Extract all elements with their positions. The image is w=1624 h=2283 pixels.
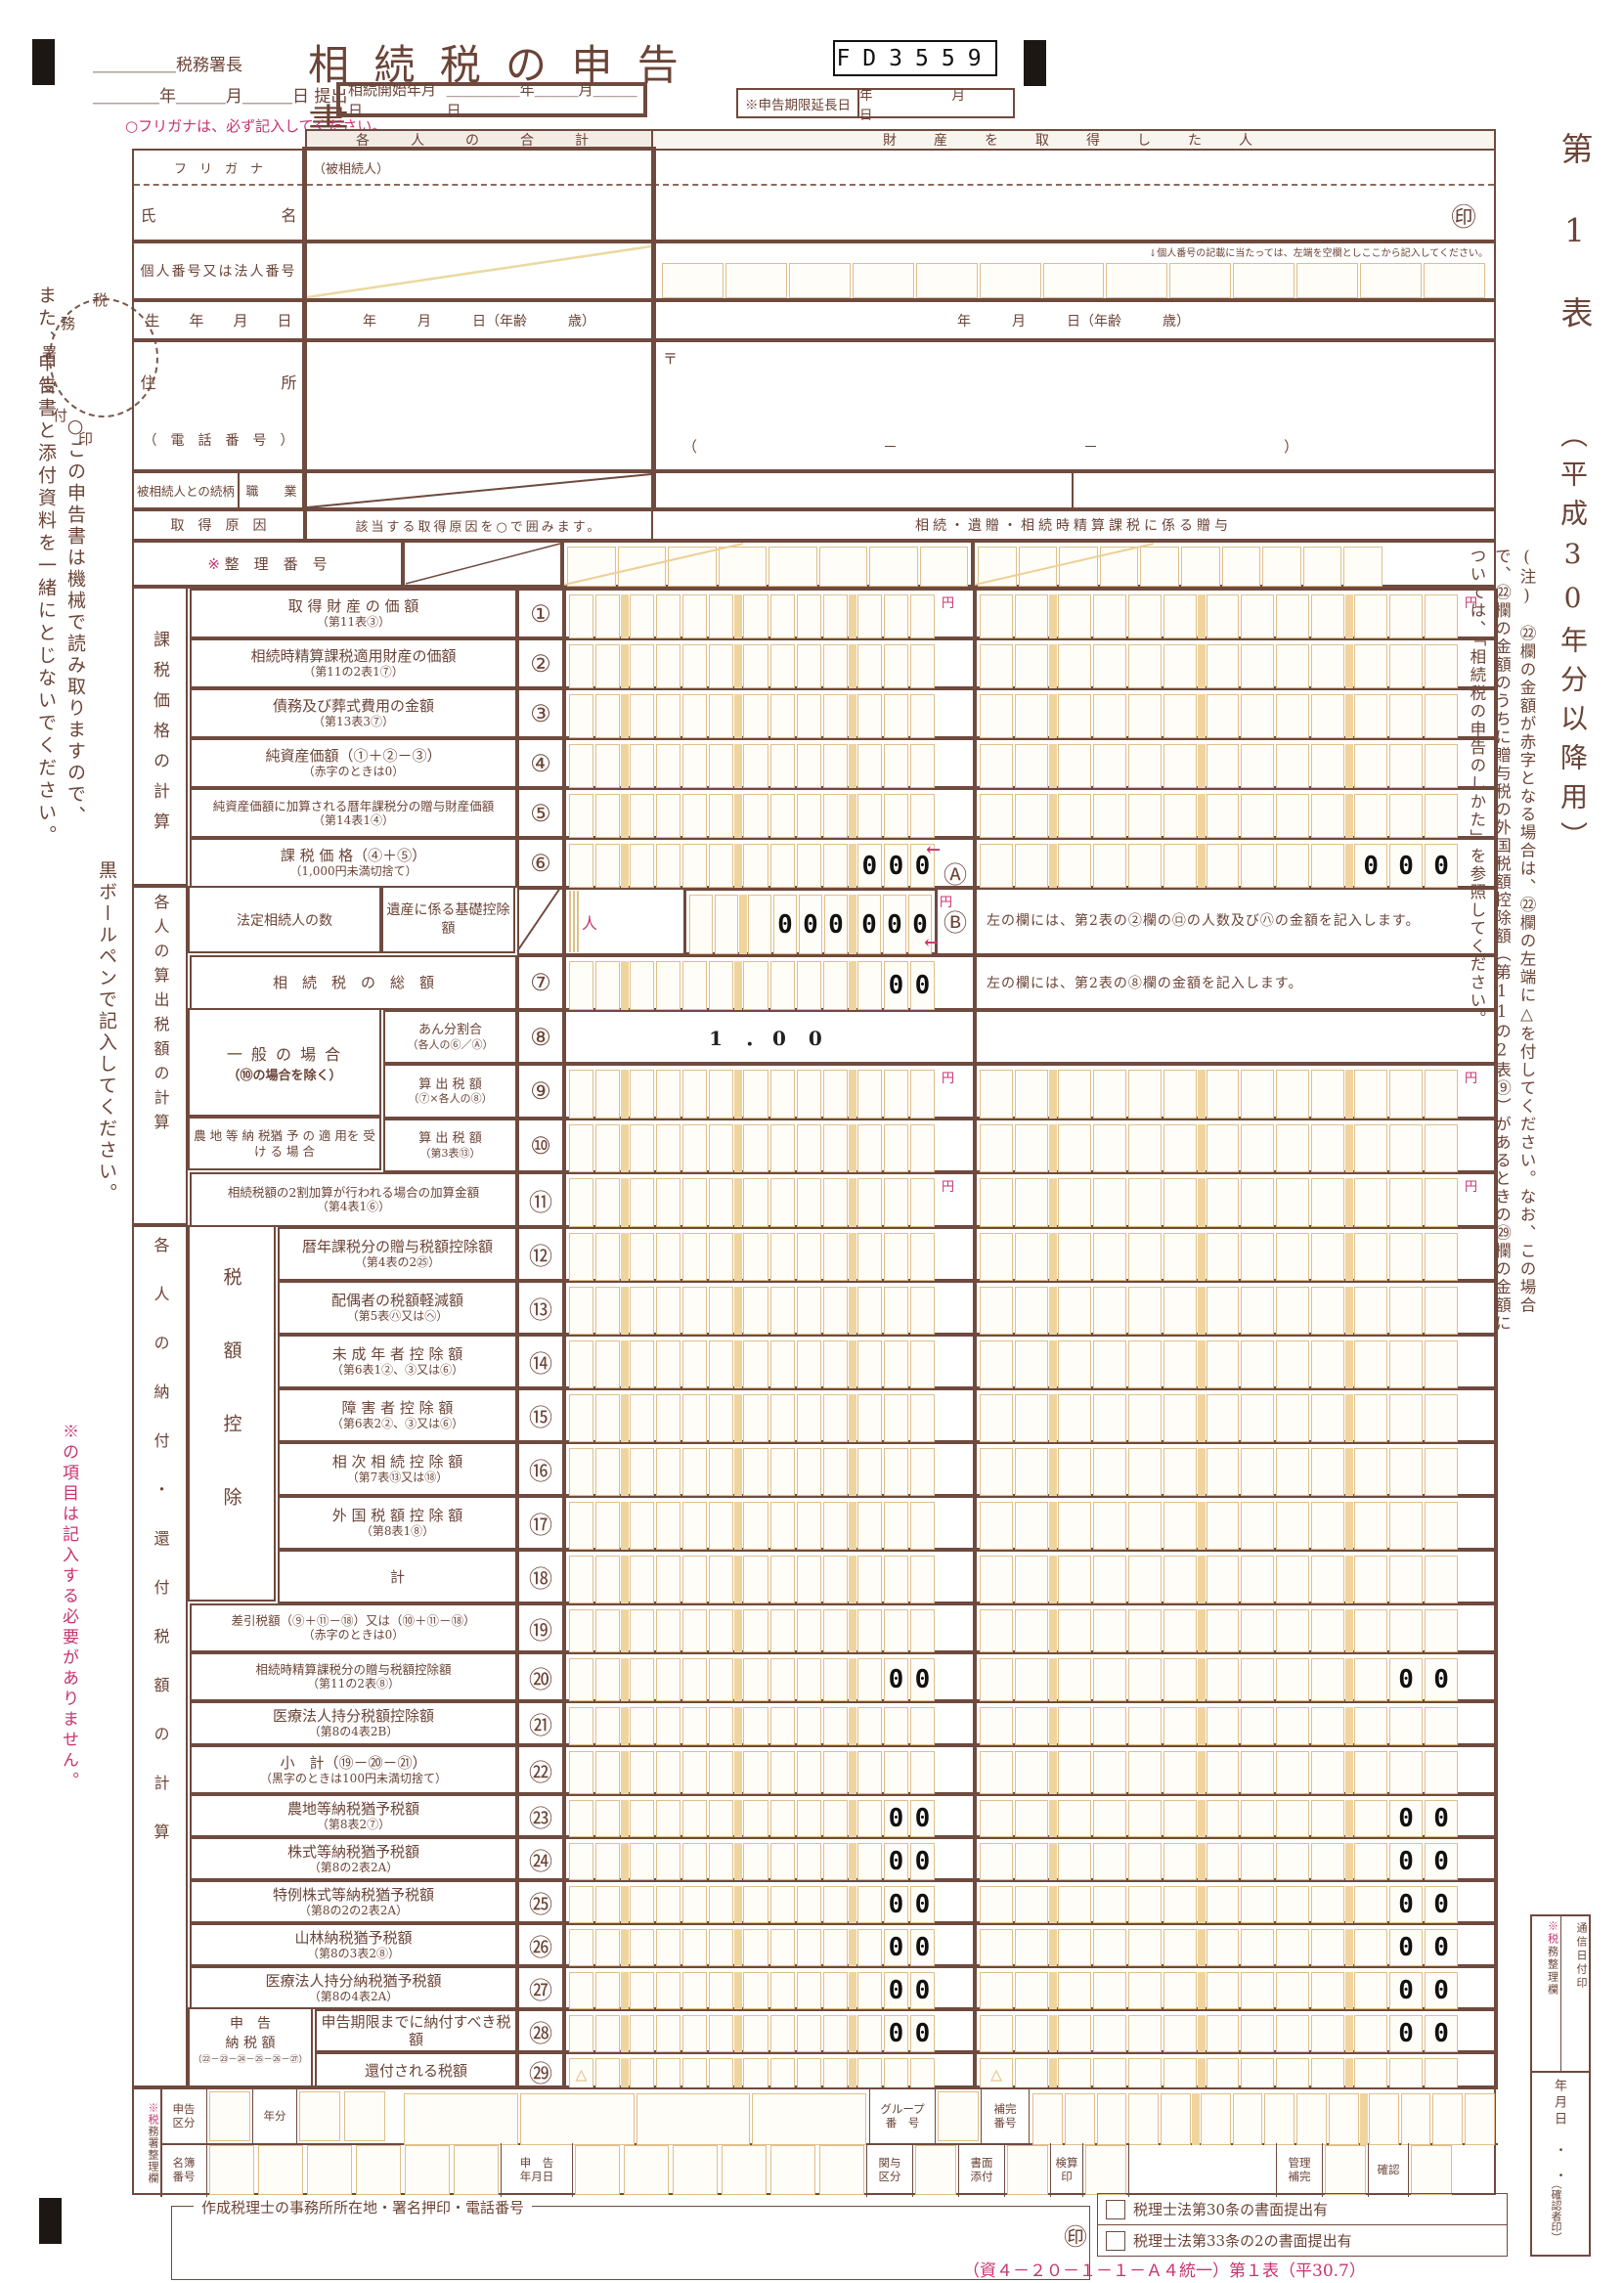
money-cell[interactable] — [1389, 1124, 1423, 1172]
money-cell[interactable] — [1389, 1707, 1423, 1745]
money-cell[interactable] — [743, 744, 768, 788]
money-cell[interactable] — [1128, 844, 1162, 888]
money-cell[interactable] — [857, 1609, 882, 1652]
money-cell[interactable] — [1311, 644, 1344, 688]
person-occupation-cell[interactable] — [1072, 471, 1496, 509]
money-cell[interactable] — [1207, 1502, 1240, 1550]
money-cell[interactable] — [1207, 744, 1240, 788]
money-cell[interactable] — [857, 1233, 882, 1281]
admin-box[interactable] — [405, 2145, 450, 2195]
money-cell[interactable] — [682, 1502, 707, 1550]
money-cell[interactable] — [1163, 1178, 1197, 1227]
money-cell[interactable] — [770, 1972, 795, 2009]
money-cell[interactable] — [569, 844, 593, 888]
money-cell[interactable] — [1389, 1751, 1423, 1794]
admin-box[interactable] — [673, 2145, 718, 2195]
money-cell[interactable] — [1425, 1124, 1458, 1172]
money-cell[interactable] — [1241, 1886, 1274, 1923]
money-cell[interactable] — [1276, 1800, 1309, 1837]
money-cell[interactable] — [1276, 1124, 1309, 1172]
sum-cells-9[interactable] — [566, 1066, 938, 1117]
money-cell[interactable] — [1354, 594, 1387, 638]
money-cell[interactable] — [1128, 1843, 1162, 1880]
money-cell[interactable]: 0 — [910, 1843, 935, 1880]
money-cell[interactable] — [910, 594, 935, 638]
money-cell[interactable] — [1058, 1448, 1091, 1496]
person-cells-4[interactable] — [977, 740, 1461, 786]
money-cell[interactable] — [1059, 547, 1098, 587]
money-cell[interactable] — [709, 1340, 733, 1388]
money-cell[interactable] — [569, 1340, 593, 1388]
money-cell[interactable] — [797, 1178, 821, 1227]
money-cell[interactable] — [630, 1070, 654, 1119]
person-address-cell[interactable]: 〒 （ － － ） — [651, 340, 1496, 471]
money-cell[interactable] — [1354, 1340, 1387, 1388]
money-cell[interactable] — [823, 694, 848, 738]
money-cell[interactable] — [980, 744, 1013, 788]
money-cell[interactable] — [709, 1394, 733, 1442]
money-cell[interactable] — [910, 644, 935, 688]
money-cell[interactable] — [656, 1658, 680, 1701]
money-cell[interactable] — [884, 1502, 908, 1550]
money-cell[interactable]: 0 — [1354, 844, 1387, 888]
money-cell[interactable] — [1058, 1394, 1091, 1442]
money-cell[interactable] — [1241, 594, 1274, 638]
sum-amount-27[interactable]: 00 — [564, 1966, 975, 2009]
money-cell[interactable] — [569, 1070, 593, 1119]
money-cell[interactable] — [743, 1233, 768, 1281]
money-cell[interactable] — [884, 744, 908, 788]
money-cell[interactable] — [630, 2058, 654, 2089]
money-cell[interactable] — [823, 1929, 848, 1966]
money-cell[interactable] — [857, 794, 882, 838]
money-cell[interactable] — [884, 2058, 908, 2089]
person-amount-heirs[interactable]: 左の欄には、第2表の②欄の㋺の人数及び㋩の金額を記入します。 — [975, 888, 1498, 955]
person-cells-6[interactable]: 000 — [977, 840, 1461, 886]
person-cells-16[interactable] — [977, 1444, 1461, 1494]
money-cell[interactable] — [857, 1340, 882, 1388]
money-cell[interactable] — [709, 1124, 733, 1172]
money-cell[interactable] — [1354, 1886, 1387, 1923]
money-cell[interactable] — [1425, 1340, 1458, 1388]
money-cell[interactable] — [1207, 1972, 1240, 2009]
money-cell[interactable] — [1093, 1609, 1126, 1652]
money-cell[interactable] — [1128, 1340, 1162, 1388]
money-cell[interactable]: 0 — [884, 2015, 908, 2052]
money-cell[interactable] — [1163, 1287, 1197, 1335]
money-cell[interactable] — [725, 263, 787, 298]
money-cell[interactable] — [857, 2058, 882, 2089]
money-cell[interactable] — [1128, 1178, 1162, 1227]
money-cell[interactable] — [569, 1751, 593, 1794]
money-cell[interactable] — [823, 1707, 848, 1745]
money-cell[interactable] — [823, 1886, 848, 1923]
money-cell[interactable] — [910, 1556, 935, 1603]
person-cause-cell[interactable]: 相続・遺贈・相続時精算課税に係る贈与 — [651, 509, 1496, 541]
money-cell[interactable] — [1311, 1929, 1344, 1966]
money-cell[interactable] — [1311, 1070, 1344, 1119]
money-cell[interactable] — [980, 1394, 1013, 1442]
money-cell[interactable]: 0 — [1425, 1843, 1458, 1880]
money-cell[interactable] — [743, 1972, 768, 2009]
money-cell[interactable] — [823, 1394, 848, 1442]
money-cell[interactable] — [823, 1070, 848, 1119]
sum-cells-1[interactable] — [566, 591, 938, 637]
money-cell[interactable] — [823, 1843, 848, 1880]
money-cell[interactable] — [709, 1609, 733, 1652]
money-cell[interactable] — [743, 694, 768, 738]
money-cell[interactable] — [656, 1124, 680, 1172]
money-cell[interactable] — [743, 1843, 768, 1880]
money-cell[interactable] — [1163, 644, 1197, 688]
money-cell[interactable] — [656, 1340, 680, 1388]
money-cell[interactable] — [1354, 1178, 1387, 1227]
money-cell[interactable] — [682, 1707, 707, 1745]
money-cell[interactable]: 0 — [857, 895, 881, 954]
sum-amount-5[interactable] — [564, 788, 975, 838]
money-cell[interactable] — [1425, 1448, 1458, 1496]
money-cell[interactable] — [636, 2093, 751, 2145]
money-cell[interactable] — [1207, 1448, 1240, 1496]
money-cell[interactable] — [1276, 1707, 1309, 1745]
sum-cells-22[interactable] — [566, 1747, 938, 1792]
money-cell[interactable] — [1093, 744, 1126, 788]
money-cell[interactable] — [1163, 1972, 1197, 2009]
money-cell[interactable] — [1241, 1658, 1274, 1701]
money-cell[interactable] — [770, 1340, 795, 1388]
money-cell[interactable] — [743, 1340, 768, 1388]
money-cell[interactable] — [595, 1287, 620, 1335]
money-cell[interactable] — [797, 1070, 821, 1119]
money-cell[interactable] — [569, 794, 593, 838]
money-cell[interactable] — [770, 2058, 795, 2089]
money-cell[interactable] — [1354, 1124, 1387, 1172]
money-cell[interactable] — [797, 844, 821, 888]
money-cell[interactable] — [1354, 1972, 1387, 2009]
money-cell[interactable] — [980, 794, 1013, 838]
money-cell[interactable] — [1163, 1609, 1197, 1652]
money-cell[interactable] — [980, 1972, 1013, 2009]
money-cell[interactable] — [1093, 1394, 1126, 1442]
person-amount-2[interactable] — [975, 638, 1498, 688]
sum-birth-cell[interactable]: 年 月 日（年齢 歳） — [305, 300, 653, 340]
sum-cells-4[interactable] — [566, 740, 938, 786]
person-amount-9[interactable]: 円 — [975, 1064, 1498, 1119]
money-cell[interactable] — [1389, 1502, 1423, 1550]
admin-box[interactable] — [938, 2091, 979, 2141]
money-cell[interactable] — [1276, 2058, 1309, 2089]
money-cell[interactable] — [1015, 1394, 1048, 1442]
money-cell[interactable] — [770, 1394, 795, 1442]
admin-box[interactable] — [299, 2091, 340, 2141]
money-cell[interactable] — [1389, 1340, 1423, 1388]
money-cell[interactable] — [1015, 1843, 1048, 1880]
money-cell[interactable] — [1128, 1800, 1162, 1837]
money-cell[interactable] — [1093, 1707, 1126, 1745]
sum-amount-11[interactable]: 円 — [564, 1172, 975, 1227]
person-cells-25[interactable]: 00 — [977, 1882, 1461, 1921]
money-cell[interactable] — [656, 2015, 680, 2052]
money-cell[interactable] — [595, 694, 620, 738]
money-cell[interactable] — [770, 1233, 795, 1281]
sum-amount-4[interactable] — [564, 738, 975, 788]
money-cell[interactable] — [595, 1707, 620, 1745]
money-cell[interactable] — [709, 1556, 733, 1603]
money-cell[interactable] — [595, 1929, 620, 1966]
money-cell[interactable] — [797, 1233, 821, 1281]
money-cell[interactable] — [1015, 1287, 1048, 1335]
money-cell[interactable] — [1128, 1886, 1162, 1923]
money-cell[interactable] — [618, 547, 667, 587]
money-cell[interactable] — [1093, 1287, 1126, 1335]
money-cell[interactable] — [857, 961, 882, 1010]
money-cell[interactable]: △ — [980, 2058, 1013, 2089]
money-cell[interactable] — [1425, 1070, 1458, 1119]
money-cell[interactable] — [595, 1658, 620, 1701]
admin-box[interactable] — [819, 2145, 864, 2195]
sum-amount-8[interactable]: 1 ．0 0 — [564, 1010, 975, 1064]
money-cell[interactable] — [630, 1124, 654, 1172]
money-cell[interactable] — [823, 644, 848, 688]
money-cell[interactable] — [709, 1800, 733, 1837]
deadline-extension-box[interactable]: ※申告期限延長日 年 月 日 — [736, 88, 1015, 118]
person-amount-4[interactable] — [975, 738, 1498, 788]
money-cell[interactable] — [630, 1287, 654, 1335]
money-cell[interactable] — [709, 2015, 733, 2052]
money-cell[interactable]: 0 — [884, 1843, 908, 1880]
money-cell[interactable] — [709, 1843, 733, 1880]
money-cell[interactable] — [656, 844, 680, 888]
money-cell[interactable] — [1311, 1124, 1344, 1172]
money-cell[interactable] — [823, 2058, 848, 2089]
money-cell[interactable] — [884, 1287, 908, 1335]
money-cell[interactable] — [980, 1800, 1013, 1837]
money-cell[interactable] — [884, 644, 908, 688]
person-number-cell[interactable]: ↓個人番号の記載に当たっては、左端を空欄としここから記入してください。 — [651, 241, 1496, 300]
money-cell[interactable] — [910, 1124, 935, 1172]
person-amount-7[interactable]: 左の欄には、第2表の⑧欄の金額を記入します。 — [975, 955, 1498, 1010]
money-cell[interactable] — [857, 1972, 882, 2009]
money-cell[interactable] — [1163, 844, 1197, 888]
money-cell[interactable] — [768, 547, 817, 587]
money-cell[interactable] — [682, 1929, 707, 1966]
money-cell[interactable] — [1015, 1070, 1048, 1119]
money-cell[interactable] — [797, 1658, 821, 1701]
money-cell[interactable] — [770, 1178, 795, 1227]
money-cell[interactable] — [743, 794, 768, 838]
money-cell[interactable] — [884, 1609, 908, 1652]
money-cell[interactable] — [630, 1233, 654, 1281]
money-cell[interactable] — [857, 1843, 882, 1880]
money-cell[interactable] — [569, 1972, 593, 2009]
money-cell[interactable] — [569, 1287, 593, 1335]
money-cell[interactable] — [1276, 1886, 1309, 1923]
money-cell[interactable] — [1424, 263, 1485, 298]
money-cell[interactable] — [823, 1340, 848, 1388]
money-cell[interactable] — [1354, 1448, 1387, 1496]
money-cell[interactable] — [1233, 263, 1295, 298]
money-cell[interactable] — [1425, 1707, 1458, 1745]
money-cell[interactable] — [980, 1070, 1013, 1119]
money-cell[interactable]: 0 — [884, 1800, 908, 1837]
money-cell[interactable] — [1354, 694, 1387, 738]
money-cell[interactable] — [630, 1929, 654, 1966]
money-cell[interactable] — [1093, 1178, 1126, 1227]
money-cell[interactable] — [1354, 1929, 1387, 1966]
money-cell[interactable] — [1093, 644, 1126, 688]
money-cell[interactable] — [1241, 1340, 1274, 1388]
money-cell[interactable] — [595, 594, 620, 638]
money-cell[interactable] — [595, 1800, 620, 1837]
money-cell[interactable] — [630, 1448, 654, 1496]
money-cell[interactable] — [1425, 1751, 1458, 1794]
money-cell[interactable] — [709, 2058, 733, 2089]
money-cell[interactable] — [569, 1609, 593, 1652]
person-cells-22[interactable] — [977, 1747, 1461, 1792]
money-cell[interactable] — [656, 1178, 680, 1227]
money-cell[interactable] — [1354, 1233, 1387, 1281]
sum-amount-12[interactable] — [564, 1227, 975, 1281]
person-cells-27[interactable]: 00 — [977, 1968, 1461, 2007]
money-cell[interactable] — [567, 547, 616, 587]
money-cell[interactable] — [630, 961, 654, 1010]
money-cell[interactable] — [1241, 1843, 1274, 1880]
money-cell[interactable]: 0 — [1389, 1800, 1423, 1837]
money-cell[interactable] — [743, 1502, 768, 1550]
money-cell[interactable] — [1128, 2058, 1162, 2089]
admin-box[interactable] — [1085, 2145, 1126, 2195]
money-cell[interactable]: 0 — [910, 1800, 935, 1837]
admin-box[interactable] — [575, 2145, 620, 2195]
money-cell[interactable] — [1276, 1843, 1309, 1880]
money-cell[interactable] — [1241, 744, 1274, 788]
money-cell[interactable] — [682, 694, 707, 738]
money-cell[interactable] — [656, 594, 680, 638]
money-cell[interactable] — [1329, 2093, 1359, 2145]
money-cell[interactable] — [980, 694, 1013, 738]
money-cell[interactable] — [1163, 1929, 1197, 1966]
money-cell[interactable] — [910, 744, 935, 788]
money-cell[interactable] — [1207, 1394, 1240, 1442]
money-cell[interactable] — [1163, 1800, 1197, 1837]
sum-cells-6[interactable]: 000 — [566, 840, 938, 886]
money-cell[interactable] — [682, 1609, 707, 1652]
money-cell[interactable] — [797, 1448, 821, 1496]
money-cell[interactable] — [857, 1070, 882, 1119]
money-cell[interactable] — [1276, 694, 1309, 738]
money-cell[interactable] — [823, 1658, 848, 1701]
money-cell[interactable] — [743, 1886, 768, 1923]
money-cell[interactable] — [910, 1502, 935, 1550]
money-cell[interactable] — [1241, 2015, 1274, 2052]
money-cell[interactable] — [709, 744, 733, 788]
money-cell[interactable]: 0 — [824, 895, 848, 954]
sum-amount-29[interactable]: △ — [564, 2052, 975, 2089]
person-cells-11[interactable] — [977, 1174, 1461, 1225]
money-cell[interactable] — [1163, 1556, 1197, 1603]
money-cell[interactable] — [1015, 1178, 1048, 1227]
money-cell[interactable] — [709, 1448, 733, 1496]
money-cell[interactable]: 0 — [910, 961, 935, 1010]
money-cell[interactable] — [630, 844, 654, 888]
money-cell[interactable] — [709, 794, 733, 838]
money-cell[interactable] — [656, 1843, 680, 1880]
money-cell[interactable] — [709, 1707, 733, 1745]
money-cell[interactable] — [630, 1843, 654, 1880]
money-cell[interactable] — [595, 1843, 620, 1880]
money-cell[interactable] — [1241, 1609, 1274, 1652]
money-cell[interactable] — [1058, 2015, 1091, 2052]
seirino-person-cells[interactable] — [973, 541, 1496, 587]
money-cell[interactable] — [682, 2015, 707, 2052]
money-cell[interactable] — [1093, 2058, 1126, 2089]
sum-cells-26[interactable]: 00 — [566, 1925, 938, 1964]
money-cell[interactable] — [823, 1751, 848, 1794]
money-cell[interactable] — [1311, 1394, 1344, 1442]
money-cell[interactable] — [709, 1070, 733, 1119]
money-cell[interactable] — [980, 1178, 1013, 1227]
money-cell[interactable] — [910, 1609, 935, 1652]
money-cell[interactable] — [1241, 1233, 1274, 1281]
sum-cells-2[interactable] — [566, 640, 938, 686]
money-cell[interactable] — [1058, 594, 1091, 638]
money-cell[interactable] — [1058, 1556, 1091, 1603]
money-cell[interactable] — [595, 2015, 620, 2052]
money-cell[interactable] — [1425, 794, 1458, 838]
money-cell[interactable] — [569, 1233, 593, 1281]
money-cell[interactable] — [1207, 694, 1240, 738]
money-cell[interactable] — [797, 1707, 821, 1745]
money-cell[interactable] — [1128, 1556, 1162, 1603]
money-cell[interactable] — [1015, 1929, 1048, 1966]
money-cell[interactable] — [630, 1394, 654, 1442]
money-cell[interactable] — [743, 2058, 768, 2089]
money-cell[interactable] — [980, 1609, 1013, 1652]
money-cell[interactable] — [1262, 547, 1301, 587]
money-cell[interactable] — [1058, 844, 1091, 888]
money-cell[interactable] — [743, 1070, 768, 1119]
money-cell[interactable] — [1065, 2093, 1095, 2145]
money-cell[interactable] — [656, 1800, 680, 1837]
person-cells-9[interactable] — [977, 1066, 1461, 1117]
money-cell[interactable] — [1093, 1233, 1126, 1281]
money-cell[interactable]: 0 — [1425, 1886, 1458, 1923]
money-cell[interactable] — [595, 1178, 620, 1227]
money-cell[interactable]: 0 — [910, 1972, 935, 2009]
money-cell[interactable] — [1093, 1070, 1126, 1119]
person-cells-5[interactable] — [977, 790, 1461, 836]
heirs-count-cells[interactable]: 人 — [566, 890, 683, 953]
money-cell[interactable] — [743, 1448, 768, 1496]
money-cell[interactable] — [1241, 1707, 1274, 1745]
person-amount-11[interactable]: 円 — [975, 1172, 1498, 1227]
money-cell[interactable] — [656, 744, 680, 788]
money-cell[interactable] — [569, 1394, 593, 1442]
money-cell[interactable] — [1425, 644, 1458, 688]
money-cell[interactable] — [884, 1233, 908, 1281]
person-amount-26[interactable]: 00 — [975, 1923, 1498, 1966]
money-cell[interactable] — [1303, 547, 1342, 587]
money-cell[interactable] — [1207, 1340, 1240, 1388]
money-cell[interactable] — [569, 594, 593, 638]
money-cell[interactable]: 0 — [910, 2015, 935, 2052]
money-cell[interactable] — [668, 547, 717, 587]
money-cell[interactable] — [857, 1707, 882, 1745]
money-cell[interactable] — [1241, 2058, 1274, 2089]
money-cell[interactable] — [823, 1972, 848, 2009]
money-cell[interactable] — [595, 2058, 620, 2089]
money-cell[interactable] — [1043, 263, 1105, 298]
